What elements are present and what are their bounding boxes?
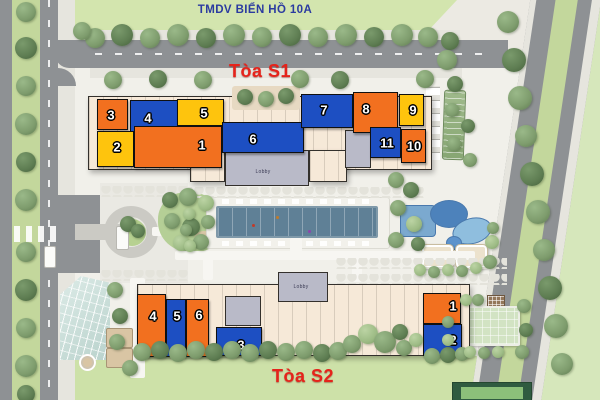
unit-blocks-layer: 3452167891110456312 bbox=[0, 0, 600, 400]
unit-number: 1 bbox=[449, 300, 456, 313]
unit-number: 11 bbox=[380, 137, 394, 150]
unit-block-s1-1[interactable]: 1 bbox=[134, 126, 222, 168]
unit-block-s1-9[interactable]: 9 bbox=[399, 94, 424, 126]
unit-number: 3 bbox=[237, 339, 244, 352]
unit-number: 6 bbox=[195, 309, 202, 322]
site-plan-map: TMDV BIỂN HỒ 10A bbox=[0, 0, 600, 400]
unit-block-s1-3[interactable]: 3 bbox=[97, 99, 128, 130]
unit-number: 5 bbox=[200, 107, 207, 120]
unit-block-s2-1[interactable]: 1 bbox=[423, 293, 461, 324]
unit-block-s2-2[interactable]: 2 bbox=[423, 324, 462, 356]
unit-number: 8 bbox=[362, 103, 369, 116]
unit-block-s2-5[interactable]: 5 bbox=[166, 299, 186, 357]
unit-block-s1-5[interactable]: 5 bbox=[177, 99, 224, 126]
unit-block-s1-11[interactable]: 11 bbox=[370, 127, 401, 158]
unit-block-s2-4[interactable]: 4 bbox=[137, 294, 166, 357]
unit-number: 2 bbox=[449, 334, 456, 347]
unit-block-s2-3[interactable]: 3 bbox=[216, 327, 262, 356]
unit-number: 5 bbox=[173, 310, 180, 323]
unit-block-s1-10[interactable]: 10 bbox=[401, 129, 426, 163]
unit-block-s2-6[interactable]: 6 bbox=[186, 299, 209, 357]
tower-s1-label: Tòa S1 bbox=[215, 61, 305, 82]
unit-number: 1 bbox=[198, 139, 205, 152]
unit-number: 2 bbox=[113, 141, 120, 154]
tower-s2-label: Tòa S2 bbox=[258, 366, 348, 387]
unit-number: 4 bbox=[149, 310, 156, 323]
unit-number: 4 bbox=[144, 112, 151, 125]
unit-block-s1-2[interactable]: 2 bbox=[97, 131, 134, 167]
unit-number: 10 bbox=[407, 140, 421, 153]
unit-block-s1-7[interactable]: 7 bbox=[301, 94, 353, 128]
unit-block-s1-6[interactable]: 6 bbox=[222, 122, 304, 153]
unit-number: 9 bbox=[409, 104, 416, 117]
unit-number: 3 bbox=[107, 109, 114, 122]
unit-number: 6 bbox=[249, 133, 256, 146]
unit-number: 7 bbox=[320, 104, 327, 117]
